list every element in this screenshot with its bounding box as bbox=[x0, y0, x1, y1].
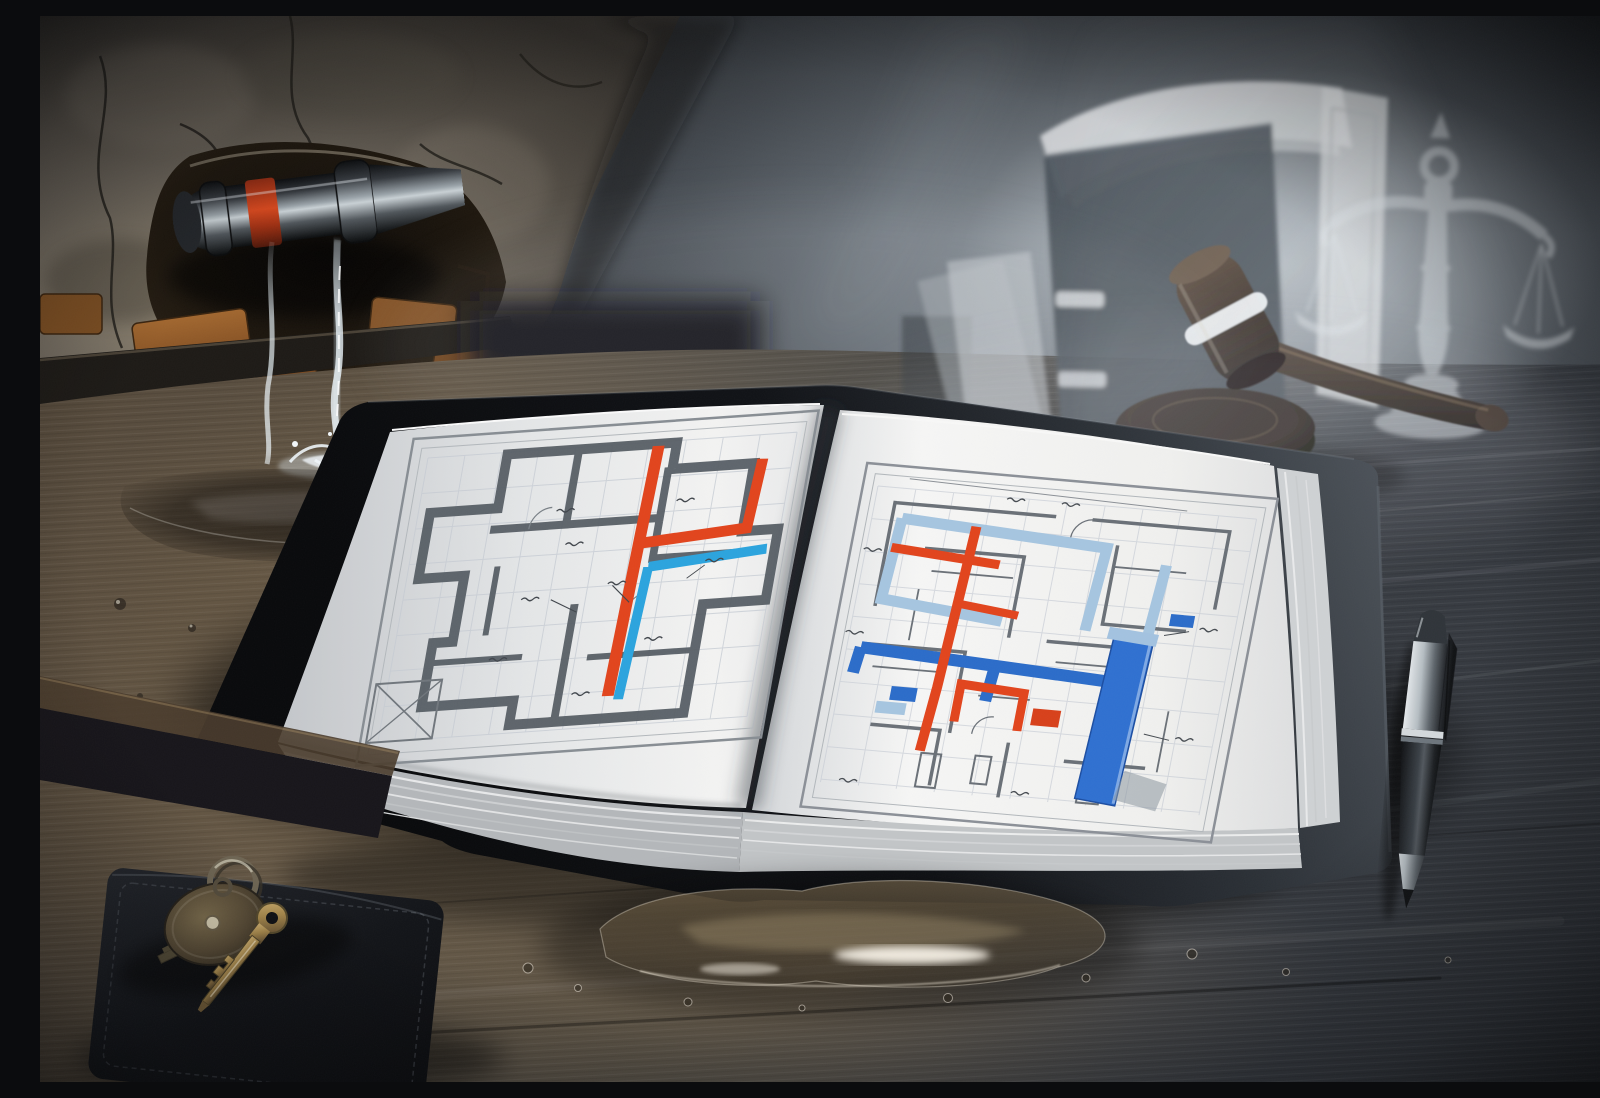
scene-photo: Dark cinematic photo-illustration: a bur… bbox=[40, 16, 1600, 1082]
scene-canvas: Dark cinematic photo-illustration: a bur… bbox=[40, 16, 1600, 1082]
film-grain bbox=[40, 16, 1600, 1082]
